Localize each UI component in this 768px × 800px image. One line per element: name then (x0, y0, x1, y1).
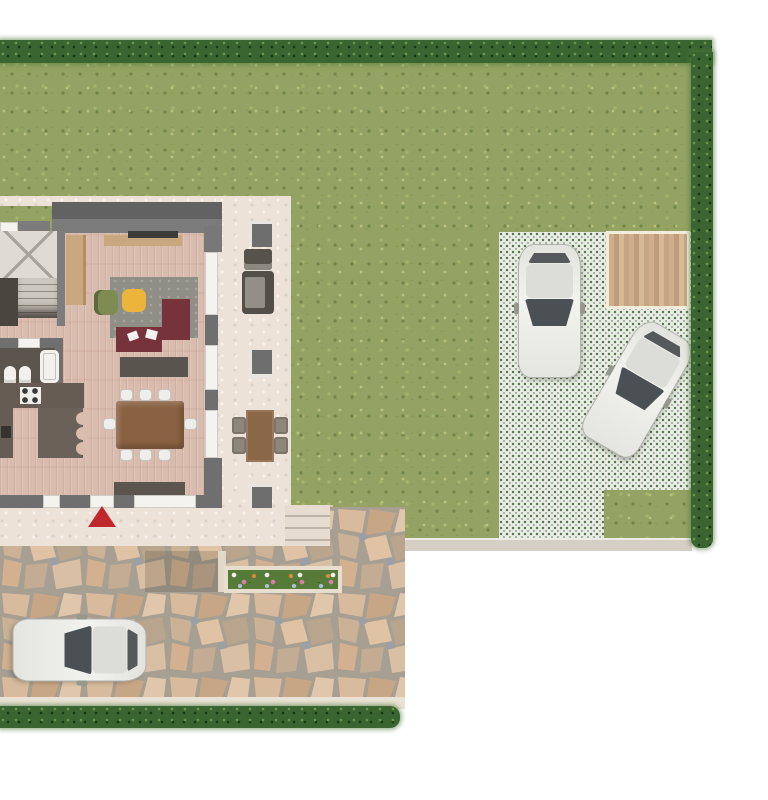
hedge-right (691, 52, 713, 548)
car-rear-window (528, 253, 571, 263)
driveway-recess (145, 551, 218, 592)
car-mirror (514, 303, 519, 314)
outdoor-chair (232, 417, 246, 434)
outdoor-chair (274, 437, 288, 454)
outdoor-sofa-seat (245, 277, 265, 308)
kitchen-counter (0, 383, 84, 408)
wardrobe (66, 235, 86, 305)
car-windshield (525, 299, 574, 326)
hedge-bottom (0, 706, 400, 728)
dining-chair (103, 418, 116, 430)
dining-chair (158, 389, 171, 401)
dining-chair (120, 449, 133, 461)
staircase (18, 278, 57, 318)
patio-pillar (249, 350, 272, 377)
patio-pillar (249, 484, 272, 508)
dining-chair (120, 389, 133, 401)
east-window (205, 410, 218, 458)
bathtub (40, 350, 59, 383)
outdoor-chair (232, 437, 246, 454)
kitchen-appliance (1, 426, 11, 438)
east-wall-segment (205, 315, 218, 345)
dining-chair (139, 449, 152, 461)
yellow-stool (122, 289, 146, 312)
parking-lawn-patch (604, 490, 692, 540)
site-plan (0, 0, 768, 800)
bathroom-wall-top-left (0, 338, 18, 348)
office-chair (94, 290, 118, 315)
hedge-top (0, 40, 712, 63)
bar-stool-notch (76, 442, 90, 455)
dining-chair (184, 418, 197, 430)
stair-partition-wall (57, 231, 65, 326)
east-wall-segment (205, 390, 218, 410)
ne-corner-wall (204, 226, 222, 252)
boundary-curb (400, 538, 692, 551)
stove (20, 387, 41, 404)
dining-chair (158, 449, 171, 461)
car-parking-vertical (519, 245, 580, 377)
car-driveway (14, 620, 146, 681)
outdoor-dining-table (246, 410, 274, 462)
bathroom-door-opening (18, 338, 40, 348)
outdoor-armchair (244, 249, 272, 270)
desk-l-vertical (162, 299, 190, 340)
dining-chair (139, 389, 152, 401)
east-window (205, 252, 218, 315)
stair-sidewall (0, 278, 18, 326)
outdoor-chair (274, 417, 288, 434)
patio-pillar (249, 221, 272, 247)
dining-table (116, 401, 184, 449)
car-mirror (580, 303, 585, 314)
roof-band (52, 202, 222, 233)
east-window (205, 345, 218, 390)
flower-planter (224, 566, 342, 593)
wood-deck (606, 231, 690, 309)
bar-stool-notch (76, 412, 90, 425)
car-mirror (77, 615, 88, 620)
car-hood (524, 328, 575, 373)
tv (128, 231, 178, 238)
car-roof (93, 627, 127, 674)
car-windshield (65, 626, 92, 675)
stair-landing (0, 231, 57, 278)
bar-stool-notch (76, 427, 90, 440)
media-cabinet (120, 357, 188, 377)
car-hood (18, 625, 63, 676)
car-rear-window (128, 629, 138, 672)
car-roof (526, 264, 573, 298)
car-mirror (77, 681, 88, 686)
